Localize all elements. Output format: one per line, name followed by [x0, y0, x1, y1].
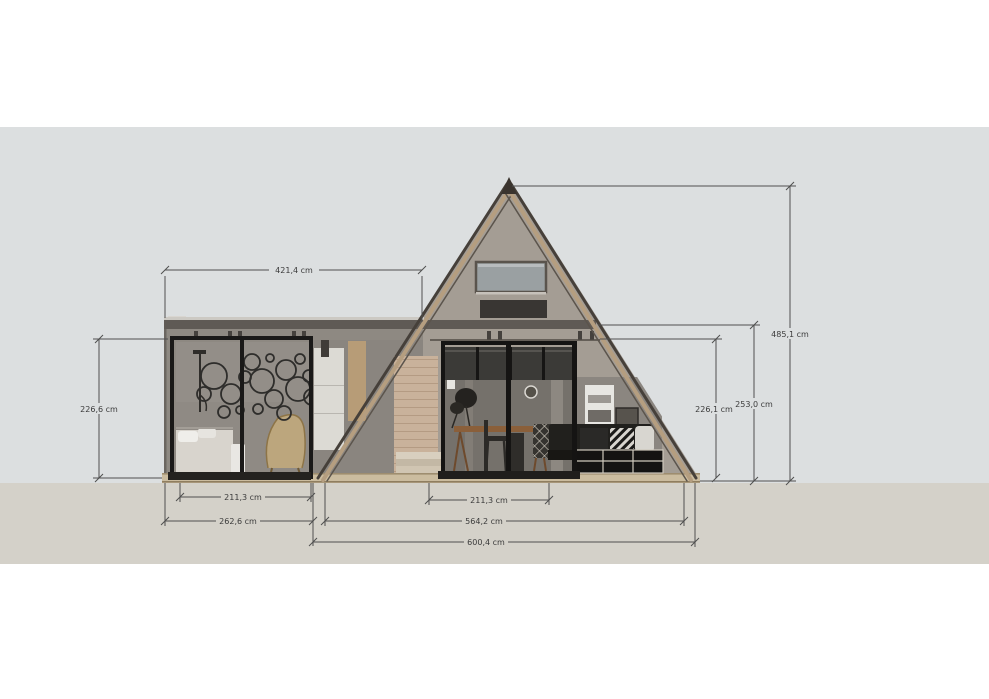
elevation-svg: 421,4 cm 226,6 cm 226,1 cm 253,0 cm 485,…	[0, 0, 989, 699]
front-door-sill	[438, 471, 580, 479]
dim-left-block-width: 262,6 cm	[219, 517, 257, 526]
dim-apex-height: 485,1 cm	[771, 330, 809, 339]
left-sliding-door	[168, 338, 320, 480]
flat-building-left-edge	[164, 320, 167, 473]
dim-left-door-width: 211,3 cm	[224, 493, 262, 502]
left-door-mullion	[240, 340, 244, 475]
door-note	[447, 379, 455, 389]
left-door-sill	[168, 472, 311, 480]
dim-front-width: 564,2 cm	[465, 517, 503, 526]
dim-front-door-width: 211,3 cm	[470, 496, 508, 505]
gable-window	[476, 262, 546, 295]
round-mirror	[525, 386, 537, 398]
dim-base-width: 600,4 cm	[467, 538, 505, 547]
white-cabinet	[314, 348, 344, 450]
gable-vent	[480, 300, 547, 318]
elevation-drawing: 421,4 cm 226,6 cm 226,1 cm 253,0 cm 485,…	[0, 0, 989, 699]
dim-top-width: 421,4 cm	[275, 266, 313, 275]
dim-left-door-height: 226,6 cm	[80, 405, 118, 414]
dim-side-wall-height: 253,0 cm	[735, 400, 773, 409]
dim-right-door-height: 226,1 cm	[695, 405, 733, 414]
bed	[175, 427, 233, 473]
wall-slot	[321, 340, 329, 357]
sideboard	[573, 450, 663, 473]
